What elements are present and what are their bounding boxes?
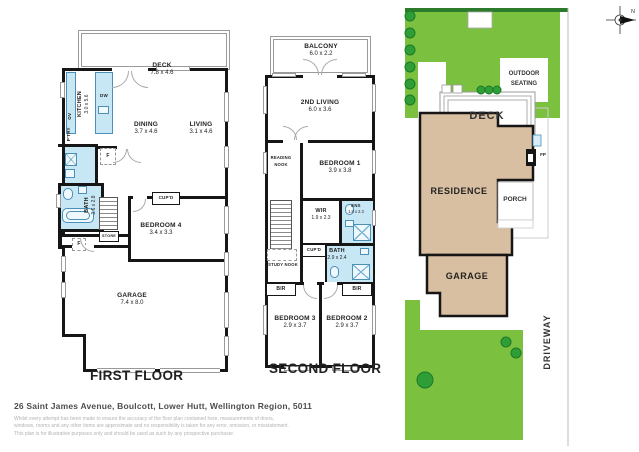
tree-icon <box>417 372 433 388</box>
living-room-label: LIVING 3.1 x 4.6 <box>171 121 231 137</box>
bedroom2-room-label: BEDROOM 2 2.9 x 3.7 <box>318 315 376 331</box>
washing-machine-icon <box>65 153 77 166</box>
compass-north-label: N <box>629 9 637 15</box>
second-floor-title: SECOND FLOOR <box>269 361 381 376</box>
deck-room-label: DECK 7.8 x 4.6 <box>127 62 197 78</box>
window <box>224 252 229 276</box>
wall <box>300 143 303 200</box>
heat-pump-icon <box>533 135 541 146</box>
toilet-icon <box>330 266 339 278</box>
shower-icon <box>353 224 371 241</box>
bir-right-label: BIR <box>352 287 361 292</box>
window <box>224 206 229 234</box>
residence-label: RESIDENCE <box>419 186 499 196</box>
window <box>224 146 229 168</box>
lawn-notch <box>468 12 492 28</box>
stairs-second-floor <box>270 200 292 250</box>
tree-icon <box>405 11 415 21</box>
fridge-label: F <box>106 154 109 159</box>
fireplace-inner <box>528 154 533 162</box>
first-floor-title: FIRST FLOOR <box>90 368 183 383</box>
shower-icon <box>352 264 370 280</box>
oven-label: OV <box>68 109 73 123</box>
basin-icon <box>360 248 369 255</box>
window <box>272 73 296 77</box>
shrub-icon <box>477 86 485 94</box>
planter-icon <box>442 85 451 93</box>
garage-footprint <box>427 255 507 316</box>
lawn-bottom <box>405 300 523 440</box>
site-plan-graphic <box>400 0 639 452</box>
wall <box>95 144 98 186</box>
pantry-label: P'TRY <box>67 124 72 144</box>
tree-icon <box>405 45 415 55</box>
disclaimer-line: Whilst every attempt has been made to en… <box>14 416 414 423</box>
toilet-icon <box>63 188 73 200</box>
study-nook-label: STUDY NOOK <box>268 262 298 269</box>
tree-icon <box>405 28 415 38</box>
window <box>60 82 65 98</box>
window <box>224 92 229 122</box>
boundary-top-line <box>405 8 568 12</box>
bath1-room-label: BATH 3.6 x 2.8 <box>84 185 98 225</box>
bir-left-label: BIR <box>276 287 285 292</box>
site-garage-label: GARAGE <box>427 271 507 281</box>
driveway-label: DRIVEWAY <box>542 314 552 370</box>
door-gap <box>283 140 308 143</box>
tree-icon <box>405 95 415 105</box>
laundry-tub-icon <box>65 169 75 178</box>
porch-label: PORCH <box>496 196 534 203</box>
dishwasher-label: DW <box>95 94 113 99</box>
bir-right-box: BIR <box>342 283 372 296</box>
garage-room-label: GARAGE 7.4 x 8.0 <box>97 292 167 308</box>
window <box>372 210 376 226</box>
bedroom3-room-label: BEDROOM 3 2.9 x 3.7 <box>266 315 324 331</box>
bedroom4-room-label: BEDROOM 4 3.4 x 3.3 <box>126 222 196 238</box>
bedroom1-room-label: BEDROOM 1 3.9 x 3.8 <box>306 160 374 176</box>
second-living-room-label: 2ND LIVING 6.0 x 3.6 <box>286 99 354 115</box>
disclaimer-line: This plan is for illustrative purposes o… <box>14 431 414 438</box>
window <box>263 86 267 114</box>
reading-nook-label: READING NOOK <box>266 155 296 168</box>
floor-plan-sheet: STORE F F CUP'D <box>0 0 639 452</box>
window <box>372 84 376 112</box>
garage-notch <box>62 334 86 372</box>
disclaimer-line: windows, rooms and any other items are a… <box>14 423 414 430</box>
porch-steps <box>498 220 533 228</box>
tree-icon <box>511 348 521 358</box>
window <box>224 292 229 328</box>
address-line: 26 Saint James Avenue, Boulcott, Lower H… <box>14 401 414 411</box>
tree-icon <box>405 79 415 89</box>
window <box>61 282 66 298</box>
footer: 26 Saint James Avenue, Boulcott, Lower H… <box>14 401 414 438</box>
stairs-first-floor <box>99 197 118 230</box>
site-deck-label: DECK <box>452 110 522 122</box>
shrub-icon <box>485 86 493 94</box>
wir-room-label: WIR 1.9 x 2.3 <box>302 208 340 222</box>
tree-icon <box>405 62 415 72</box>
ensuite-room-label: ENS 1.8 x 2.3 <box>343 203 369 214</box>
balcony-room-label: BALCONY 6.0 x 2.2 <box>289 43 353 59</box>
store-cupboard: STORE <box>99 231 119 242</box>
store-label: STORE <box>102 235 116 239</box>
window <box>56 194 61 208</box>
planter-icon <box>453 85 462 93</box>
kitchen-room-label: KITCHEN 3.0 x 5.6 <box>77 79 93 129</box>
sink-icon <box>98 106 109 114</box>
wall <box>58 229 62 249</box>
cupboard-label: CUP'D <box>159 196 174 201</box>
fireplace-label: FP <box>537 152 549 157</box>
wall <box>58 144 98 147</box>
study-nook-desk <box>267 249 297 261</box>
garage-outline <box>62 245 228 372</box>
window <box>342 73 366 77</box>
window <box>61 256 66 272</box>
bir-left-box: BIR <box>266 283 296 296</box>
wall <box>308 140 372 143</box>
door-gap <box>303 75 337 78</box>
outdoor-seating-label: OUTDOOR SEATING <box>500 69 548 89</box>
cupboard-box: CUP'D <box>152 192 180 205</box>
tree-icon <box>501 337 511 347</box>
window <box>224 336 229 356</box>
bath2-room-label: BATH 2.9 x 2.4 <box>318 248 356 262</box>
